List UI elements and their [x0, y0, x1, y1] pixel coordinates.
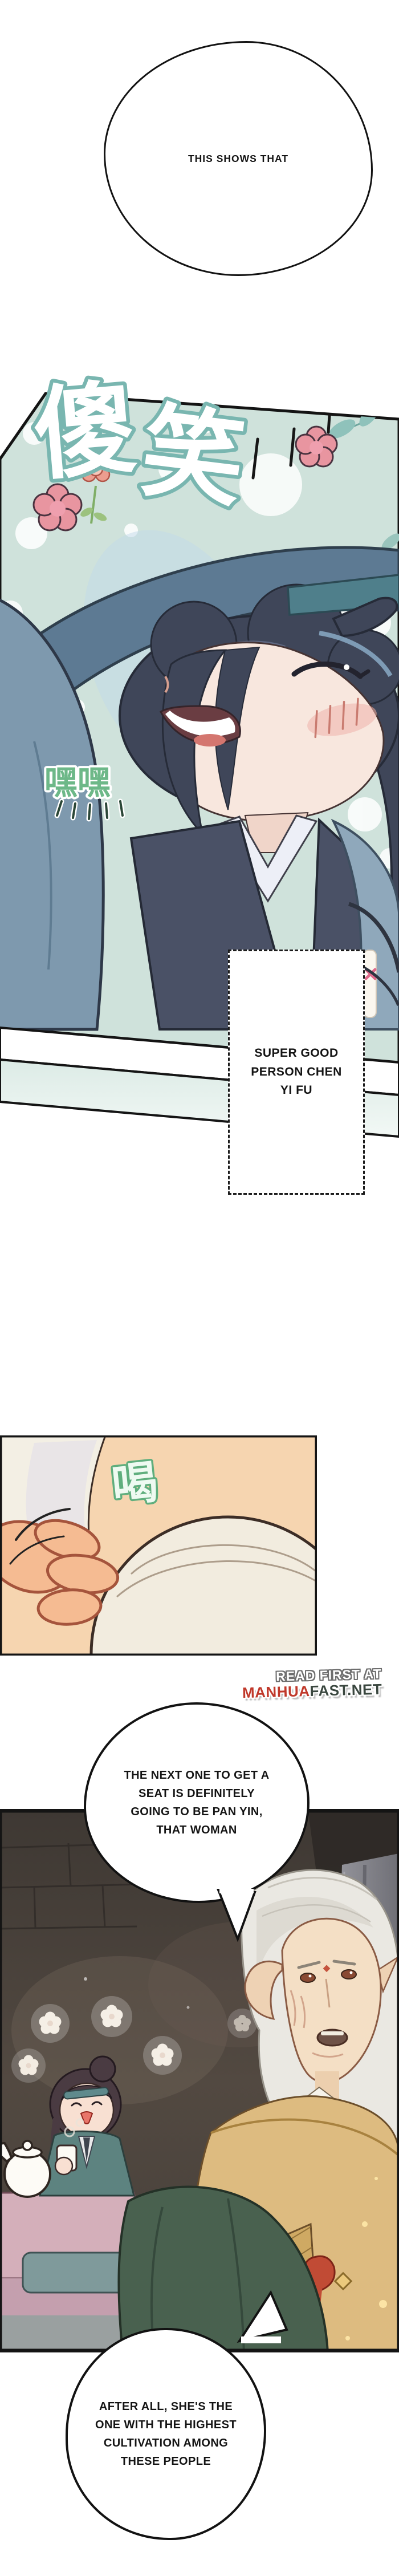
open-mouth [317, 2030, 347, 2046]
watermark-brand-dark: FAST.NET [310, 1681, 382, 1699]
speech-bubble-top: THIS SHOWS THAT [104, 41, 373, 276]
speech-bubble-cultivation: AFTER ALL, SHE'S THE ONE WITH THE HIGHES… [66, 2328, 266, 2540]
speech-bubble-pan-yin: THE NEXT ONE TO GET A SEAT IS DEFINITELY… [84, 1702, 310, 1903]
caption-box-text: SUPER GOOD PERSON CHEN YI FU [251, 1044, 342, 1100]
comic-page: THIS SHOWS THAT [0, 0, 399, 2576]
svg-text:笑: 笑 [136, 394, 250, 519]
speech-bubble-cultivation-text: AFTER ALL, SHE'S THE ONE WITH THE HIGHES… [95, 2397, 237, 2470]
site-watermark: READ FIRST AT MANHUAFAST.NET [238, 1667, 382, 1701]
svg-text:嘿嘿: 嘿嘿 [44, 764, 111, 801]
watermark-line2: MANHUAFAST.NET [238, 1681, 382, 1701]
svg-text:傻: 傻 [30, 371, 141, 493]
bubble-tail-down [214, 1889, 259, 1943]
speech-bubble-pan-yin-text: THE NEXT ONE TO GET A SEAT IS DEFINITELY… [124, 1766, 269, 1839]
speech-bubble-top-text: THIS SHOWS THAT [188, 151, 288, 167]
watermark-brand-red: MANHUA [242, 1682, 310, 1701]
bubble-tail-up [237, 2290, 291, 2344]
hair-bun [90, 2056, 115, 2082]
panel-hand-closeup: 喝 [0, 1435, 317, 1656]
caption-box: SUPER GOOD PERSON CHEN YI FU [228, 950, 365, 1195]
sfx-gulp: 喝 [109, 1457, 160, 1512]
